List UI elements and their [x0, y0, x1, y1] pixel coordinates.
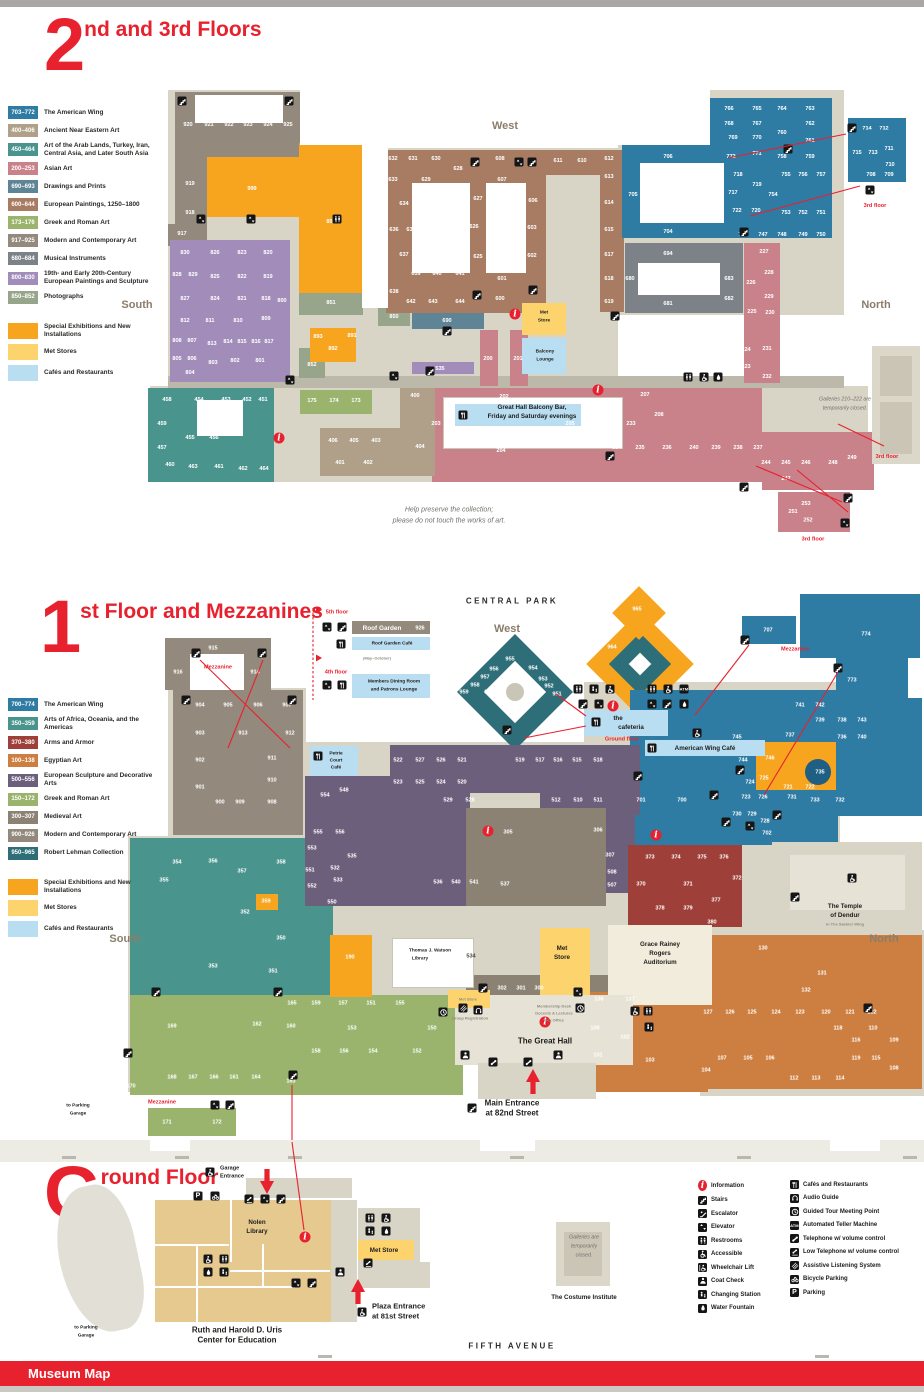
- icon-legend-label: Wheelchair Lift: [711, 1265, 754, 1271]
- parking-icon: P: [194, 1192, 203, 1201]
- info-icon: i: [483, 826, 494, 837]
- gallery-number: 828: [172, 271, 181, 277]
- gallery-number: 528: [465, 797, 474, 803]
- courtyard: [486, 183, 526, 273]
- gallery-number: 804: [185, 369, 194, 375]
- icon-legend-row: Stairs: [698, 1196, 790, 1205]
- lowphone-icon: [245, 1195, 254, 1204]
- elevator-icon: [390, 372, 399, 381]
- gallery-number: 760: [777, 129, 786, 135]
- gallery-number: 745: [732, 734, 741, 740]
- gallery-number: 206: [587, 420, 596, 426]
- gallery-number: 380: [707, 919, 716, 925]
- legend-row: 350–359Arts of Africa, Oceania, and the …: [8, 716, 166, 731]
- gallery-number: 459: [157, 420, 166, 426]
- gallery-number: 816: [251, 338, 260, 344]
- legend-amenity-row: Cafés and Restaurants: [8, 921, 166, 937]
- water-icon: [698, 1304, 707, 1313]
- map-label: Membership Desk: [537, 1004, 571, 1009]
- gallery-number: 245: [781, 459, 790, 465]
- map-label: Auditorium: [643, 958, 676, 965]
- gallery-number: 460: [165, 461, 174, 467]
- restroom-icon: [333, 215, 342, 224]
- legend-swatch: 400–406: [8, 124, 38, 137]
- icon-legend-row: Bicycle Parking: [790, 1275, 882, 1284]
- region-base: [478, 1063, 596, 1099]
- gallery-number: 893: [313, 333, 322, 339]
- gallery-number: 600: [495, 295, 504, 301]
- gallery-number: 403: [371, 437, 380, 443]
- gallery-number: 131: [817, 970, 826, 976]
- info-icon: i: [274, 433, 285, 444]
- gallery-number: 352: [240, 909, 249, 915]
- gallery-number: 228: [764, 269, 773, 275]
- escalator-icon: [698, 1209, 707, 1218]
- stairs-icon: [834, 664, 843, 673]
- gallery-number: 733: [810, 797, 819, 803]
- accessible-icon: [204, 1255, 213, 1264]
- map-label: Mezzanine: [204, 664, 232, 670]
- gallery-number: 743: [857, 717, 866, 723]
- map-label: Entrance: [220, 1173, 244, 1179]
- gallery-number: 955: [505, 656, 514, 662]
- icon-legend-row: Assistive Listening System: [790, 1261, 882, 1270]
- icon-legend-row: Audio Guide: [790, 1194, 882, 1203]
- gallery-number: 803: [208, 359, 217, 365]
- legend-label: Greek and Roman Art: [44, 795, 160, 803]
- stairs-icon: [634, 772, 643, 781]
- gallery-number: 715: [852, 149, 861, 155]
- gallery-number: 302: [497, 985, 506, 991]
- legend-floor1: 700–774The American Wing350–359Arts of A…: [8, 698, 166, 942]
- gallery-number: 724: [745, 779, 754, 785]
- legend-label: Egyptian Art: [44, 757, 160, 765]
- region-orange: [330, 935, 372, 997]
- info-icon: i: [593, 385, 604, 396]
- courtyard: [197, 400, 243, 436]
- icon-legend-row: Low Telephone w/ volume control: [790, 1248, 882, 1257]
- stairs-icon: [663, 700, 672, 709]
- gallery-number: 922: [224, 121, 233, 127]
- gallery-number: 710: [885, 161, 894, 167]
- map-label: Court: [330, 757, 343, 762]
- legend-row: 600–644European Paintings, 1250–1800: [8, 198, 166, 211]
- legend-swatch: [8, 921, 38, 937]
- icon-legend-label: Restrooms: [711, 1238, 742, 1244]
- gallery-number: 159: [311, 1000, 320, 1006]
- stairs-icon: [443, 327, 452, 336]
- cafe-icon: [314, 752, 323, 761]
- icon-legend-col1: iInformationStairsEscalatorElevatorRestr…: [698, 1180, 790, 1317]
- icon-legend-label: Assistive Listening System: [803, 1263, 881, 1269]
- gallery-number: 704: [663, 228, 672, 234]
- gallery-number: 357: [237, 868, 246, 874]
- legend-row: 690–693Drawings and Prints: [8, 180, 166, 193]
- elevator-icon: [261, 1195, 270, 1204]
- elevator-icon: [698, 1223, 707, 1232]
- street-stop-marker: [318, 1355, 332, 1358]
- stairs-icon: [740, 228, 749, 237]
- gallery-number: 541: [469, 879, 478, 885]
- gallery-number: 235: [635, 444, 644, 450]
- courtyard: [230, 1270, 330, 1272]
- stairs-icon: [182, 696, 191, 705]
- courtyard: [155, 1244, 229, 1246]
- map-label: Members Dining Room: [368, 678, 420, 683]
- courtyard: [230, 1200, 232, 1262]
- legend-swatch: [8, 365, 38, 381]
- gallery-number: 405: [349, 437, 358, 443]
- gallery-number: 810: [233, 317, 242, 323]
- gallery-number: 916: [173, 669, 182, 675]
- gallery-number: 902: [195, 757, 204, 763]
- icon-legend-label: Accessible: [711, 1251, 742, 1257]
- gallery-number: 712: [879, 125, 888, 131]
- gallery-number: 237: [753, 444, 762, 450]
- cafe-icon: [790, 1180, 799, 1189]
- map-label: Petrie: [329, 750, 342, 755]
- gallery-number: 535: [347, 853, 356, 859]
- gallery-number: 913: [238, 730, 247, 736]
- accessible-icon: [206, 1168, 215, 1177]
- legend-label: The American Wing: [44, 109, 160, 117]
- gallery-number: 358: [276, 859, 285, 865]
- gallery-number: 554: [320, 792, 329, 798]
- accessible-icon: [698, 1250, 707, 1259]
- guided-icon: [576, 1004, 585, 1013]
- lowphone-icon: [364, 1259, 373, 1268]
- legend-label: Medieval Art: [44, 813, 160, 821]
- water-icon: [204, 1268, 213, 1277]
- info-icon: i: [698, 1180, 707, 1191]
- restroom-icon: [684, 373, 693, 382]
- gallery-number: 400: [410, 392, 419, 398]
- gallery-number: 625: [473, 253, 482, 259]
- gallery-number: 769: [728, 134, 737, 140]
- gallery-number: 643: [428, 298, 437, 304]
- gallery-number: 815: [237, 338, 246, 344]
- legend-swatch: 680–684: [8, 252, 38, 265]
- gallery-number: 534: [466, 953, 475, 959]
- gallery-number: 809: [261, 315, 270, 321]
- gallery-number: 772: [726, 153, 735, 159]
- elevator-icon: [286, 376, 295, 385]
- map-label: Met: [557, 944, 568, 951]
- lowphone-icon: [790, 1248, 799, 1257]
- stairs-icon: [579, 700, 588, 709]
- map-label: 4th floor: [325, 669, 347, 675]
- gallery-number: 462: [238, 465, 247, 471]
- legend-row: 370–380Arms and Armor: [8, 736, 166, 749]
- legend-row: 917–925Modern and Contemporary Art: [8, 234, 166, 247]
- gallery-number: 719: [752, 181, 761, 187]
- map-label: North: [869, 933, 898, 945]
- street-stop-marker: [288, 1156, 302, 1159]
- water-icon: [680, 700, 689, 709]
- region-blue: [836, 698, 922, 816]
- gallery-number: 453: [221, 396, 230, 402]
- gallery-number: 752: [798, 209, 807, 215]
- map-label: CENTRAL PARK: [466, 597, 558, 606]
- gallery-number: 731: [787, 794, 796, 800]
- map-label: The Temple: [828, 902, 862, 909]
- legend-amenity-row: Special Exhibitions and New Installation…: [8, 879, 166, 895]
- gallery-number: 614: [604, 199, 613, 205]
- map-label: temporarily: [571, 1243, 597, 1249]
- icon-legend-label: Bicycle Parking: [803, 1276, 848, 1282]
- gallery-number: 105: [743, 1055, 752, 1061]
- map-label: Center for Education: [197, 1336, 276, 1345]
- gallery-number: 359: [261, 898, 270, 904]
- gallery-number: 628: [453, 165, 462, 171]
- gallery-number: 174: [329, 397, 338, 403]
- gallery-number: 746: [765, 755, 774, 761]
- courtyard: [155, 1286, 295, 1288]
- courtyard: [150, 1140, 190, 1151]
- map-label: The Costume Institute: [551, 1293, 617, 1300]
- gallery-number: 708: [866, 171, 875, 177]
- map-label: of Dendur: [830, 911, 859, 918]
- map-label: Garage: [78, 1332, 95, 1337]
- gallery-number: 175: [307, 397, 316, 403]
- map-label: Roof Garden: [363, 624, 402, 631]
- gallery-number: 813: [207, 340, 216, 346]
- gallery-number: 636: [389, 226, 398, 232]
- phone-icon: [524, 1058, 533, 1067]
- gallery-number: 959: [459, 689, 468, 695]
- map-label: North: [861, 299, 890, 311]
- gallery-number: 234: [612, 444, 621, 450]
- gallery-number: 103: [645, 1057, 654, 1063]
- legend-amenity-row: Met Stores: [8, 900, 166, 916]
- gallery-number: 173: [351, 397, 360, 403]
- cafe-icon: [338, 681, 347, 690]
- courtyard: [618, 90, 710, 145]
- region-medieval: [466, 808, 606, 906]
- map-label: Rogers: [649, 949, 670, 956]
- gallery-number: 951: [552, 691, 561, 697]
- legend-swatch: [8, 900, 38, 916]
- map-label: Box Office: [544, 1018, 564, 1023]
- courtyard: [638, 263, 720, 295]
- stairs-icon: [468, 1104, 477, 1113]
- gallery-number: 518: [593, 757, 602, 763]
- changing-icon: [698, 1290, 707, 1299]
- gallery-number: 681: [663, 300, 672, 306]
- gallery-number: 457: [157, 444, 166, 450]
- legend-label: Arts of Africa, Oceania, and the America…: [44, 716, 160, 731]
- gallery-number: 962: [524, 689, 533, 695]
- gallery-number: 722: [805, 784, 814, 790]
- stairs-icon: [722, 818, 731, 827]
- gallery-number: 226: [746, 279, 755, 285]
- icon-legend-label: Escalator: [711, 1211, 738, 1217]
- gallery-number: 244: [761, 459, 770, 465]
- gallery-number: 759: [805, 153, 814, 159]
- gallery-number: 634: [399, 200, 408, 206]
- icon-legend-label: Low Telephone w/ volume control: [803, 1249, 899, 1255]
- legend-row: 173–176Greek and Roman Art: [8, 216, 166, 229]
- gallery-number: 851: [326, 299, 335, 305]
- gallery-number: 251: [788, 508, 797, 514]
- map-label: Docents & Lectures: [535, 1011, 573, 1016]
- accessible-icon: [606, 685, 615, 694]
- gallery-number: 633: [388, 176, 397, 182]
- gallery-number: 926: [415, 625, 424, 631]
- gallery-number: 351: [268, 968, 277, 974]
- map-label: Help preserve the collection;: [405, 507, 493, 514]
- legend-label: Met Stores: [44, 904, 160, 912]
- legend-row: 900–926Modern and Contemporary Art: [8, 829, 166, 842]
- gallery-number: 639: [411, 270, 420, 276]
- gallery-number: 742: [815, 702, 824, 708]
- info-icon: i: [510, 309, 521, 320]
- gallery-number: 824: [210, 295, 219, 301]
- gallery-number: 248: [828, 459, 837, 465]
- gallery-number: 536: [433, 879, 442, 885]
- gallery-number: 756: [798, 171, 807, 177]
- courtyard: [190, 654, 244, 690]
- gallery-number: 680: [625, 275, 634, 281]
- region-uris: [155, 1200, 331, 1322]
- gallery-number: 765: [752, 105, 761, 111]
- gallery-number: 820: [263, 249, 272, 255]
- gallery-number: 700: [677, 797, 686, 803]
- gallery-number: 920: [183, 121, 192, 127]
- elevator-icon: [323, 681, 332, 690]
- map-label: Met Store: [370, 1246, 398, 1253]
- gallery-number: 610: [577, 157, 586, 163]
- accessible-icon: [848, 874, 857, 883]
- gallery-number: 532: [330, 865, 339, 871]
- gallery-number: 806: [187, 355, 196, 361]
- gallery-number: 203: [431, 420, 440, 426]
- gallery-number: 740: [857, 734, 866, 740]
- gallery-number: 892: [328, 345, 337, 351]
- gallery-number: 923: [243, 121, 252, 127]
- gallery-number: 808: [172, 337, 181, 343]
- gallery-number: 952: [544, 683, 553, 689]
- gallery-number: 375: [697, 854, 706, 860]
- icon-legend-label: Telephone w/ volume control: [803, 1236, 885, 1242]
- gallery-number: 817: [264, 338, 273, 344]
- icon-legend-label: Elevator: [711, 1224, 735, 1230]
- courtyard: [830, 1140, 880, 1151]
- gallery-number: 527: [415, 757, 424, 763]
- gallery-number: 713: [868, 149, 877, 155]
- elevator-icon: [648, 700, 657, 709]
- courtyard: [362, 120, 388, 308]
- parking-icon: P: [790, 1288, 799, 1297]
- gallery-number: 957: [480, 674, 489, 680]
- gallery-number: 737: [785, 732, 794, 738]
- legend-swatch: 917–925: [8, 234, 38, 247]
- gallery-number: 754: [768, 191, 777, 197]
- icon-legend-row: Restrooms: [698, 1236, 790, 1245]
- gallery-number: 379: [683, 905, 692, 911]
- assistive-icon: [459, 1004, 468, 1013]
- legend-label: Robert Lehman Collection: [44, 849, 160, 857]
- gallery-number: 170: [126, 1083, 135, 1089]
- gallery-number: 818: [261, 295, 270, 301]
- legend-label: Met Stores: [44, 348, 160, 356]
- elevator-icon: [841, 519, 850, 528]
- map-label: cafeteria: [618, 723, 644, 730]
- map-label: Friday and Saturday evenings: [488, 412, 577, 419]
- gallery-number: 757: [816, 171, 825, 177]
- gallery-number: 529: [443, 797, 452, 803]
- map-label: Group Registration: [452, 1016, 488, 1021]
- gallery-number: 702: [762, 830, 771, 836]
- museum-map-page: 2 nd and 3rd Floors 1 st Floor and Mezza…: [0, 0, 924, 1392]
- gallery-number: 707: [763, 627, 772, 633]
- gallery-number: 717: [728, 189, 737, 195]
- region-closedIn: [880, 356, 912, 396]
- gallery-number: 512: [551, 797, 560, 803]
- info-icon: i: [608, 701, 619, 712]
- icon-legend-label: Automated Teller Machine: [803, 1222, 877, 1228]
- stairs-icon: [606, 452, 615, 461]
- gallery-number: 735: [815, 769, 824, 775]
- legend-label: Special Exhibitions and New Installation…: [44, 879, 160, 894]
- gallery-number: 771: [752, 150, 761, 156]
- legend-row: 100–138Egyptian Art: [8, 754, 166, 767]
- gallery-number: 207: [640, 391, 649, 397]
- gallery-number: 350: [276, 935, 285, 941]
- gallery-number: 826: [210, 249, 219, 255]
- gallery-number: 240: [689, 444, 698, 450]
- gallery-number: 956: [489, 666, 498, 672]
- gallery-number: 726: [758, 794, 767, 800]
- gallery-number: 701: [636, 797, 645, 803]
- gallery-number: 119: [851, 1055, 860, 1061]
- gallery-number: 606: [528, 197, 537, 203]
- elevator-icon: [292, 1279, 301, 1288]
- audio-icon: [790, 1194, 799, 1203]
- gallery-number: 402: [363, 459, 372, 465]
- gallery-number: 720: [751, 207, 760, 213]
- assistive-icon: [790, 1261, 799, 1270]
- map-label: and Patrons Lounge: [371, 686, 417, 691]
- legend-row: 150–172Greek and Roman Art: [8, 793, 166, 806]
- map-label: Ground floor: [605, 736, 639, 742]
- gallery-number: 900: [215, 799, 224, 805]
- gallery-number: 706: [663, 153, 672, 159]
- gallery-number: 510: [573, 797, 582, 803]
- gallery-number: 515: [572, 757, 581, 763]
- legend-label: European Paintings, 1250–1800: [44, 201, 160, 209]
- gallery-number: 630: [431, 155, 440, 161]
- legend-swatch: 703–772: [8, 106, 38, 119]
- gallery-number: 458: [162, 396, 171, 402]
- gallery-number: 603: [527, 224, 536, 230]
- gallery-number: 451: [258, 396, 267, 402]
- gallery-number: 158: [311, 1048, 320, 1054]
- region-swoosh: [45, 1179, 152, 1340]
- icon-legend-label: Water Fountain: [711, 1305, 754, 1311]
- map-label: in The Sackler Wing: [826, 922, 864, 927]
- gallery-number: 121: [845, 1009, 854, 1015]
- map-label: Nolen: [248, 1218, 265, 1225]
- legend-label: Arms and Armor: [44, 739, 160, 747]
- gallery-number: 741: [795, 702, 804, 708]
- gallery-number: 166: [209, 1074, 218, 1080]
- gallery-number: 224: [741, 346, 750, 352]
- map-label: Galleries are: [569, 1234, 599, 1240]
- gallery-number: 152: [412, 1048, 421, 1054]
- stairs-icon: [473, 291, 482, 300]
- legend-row: 850–852Photographs: [8, 291, 166, 304]
